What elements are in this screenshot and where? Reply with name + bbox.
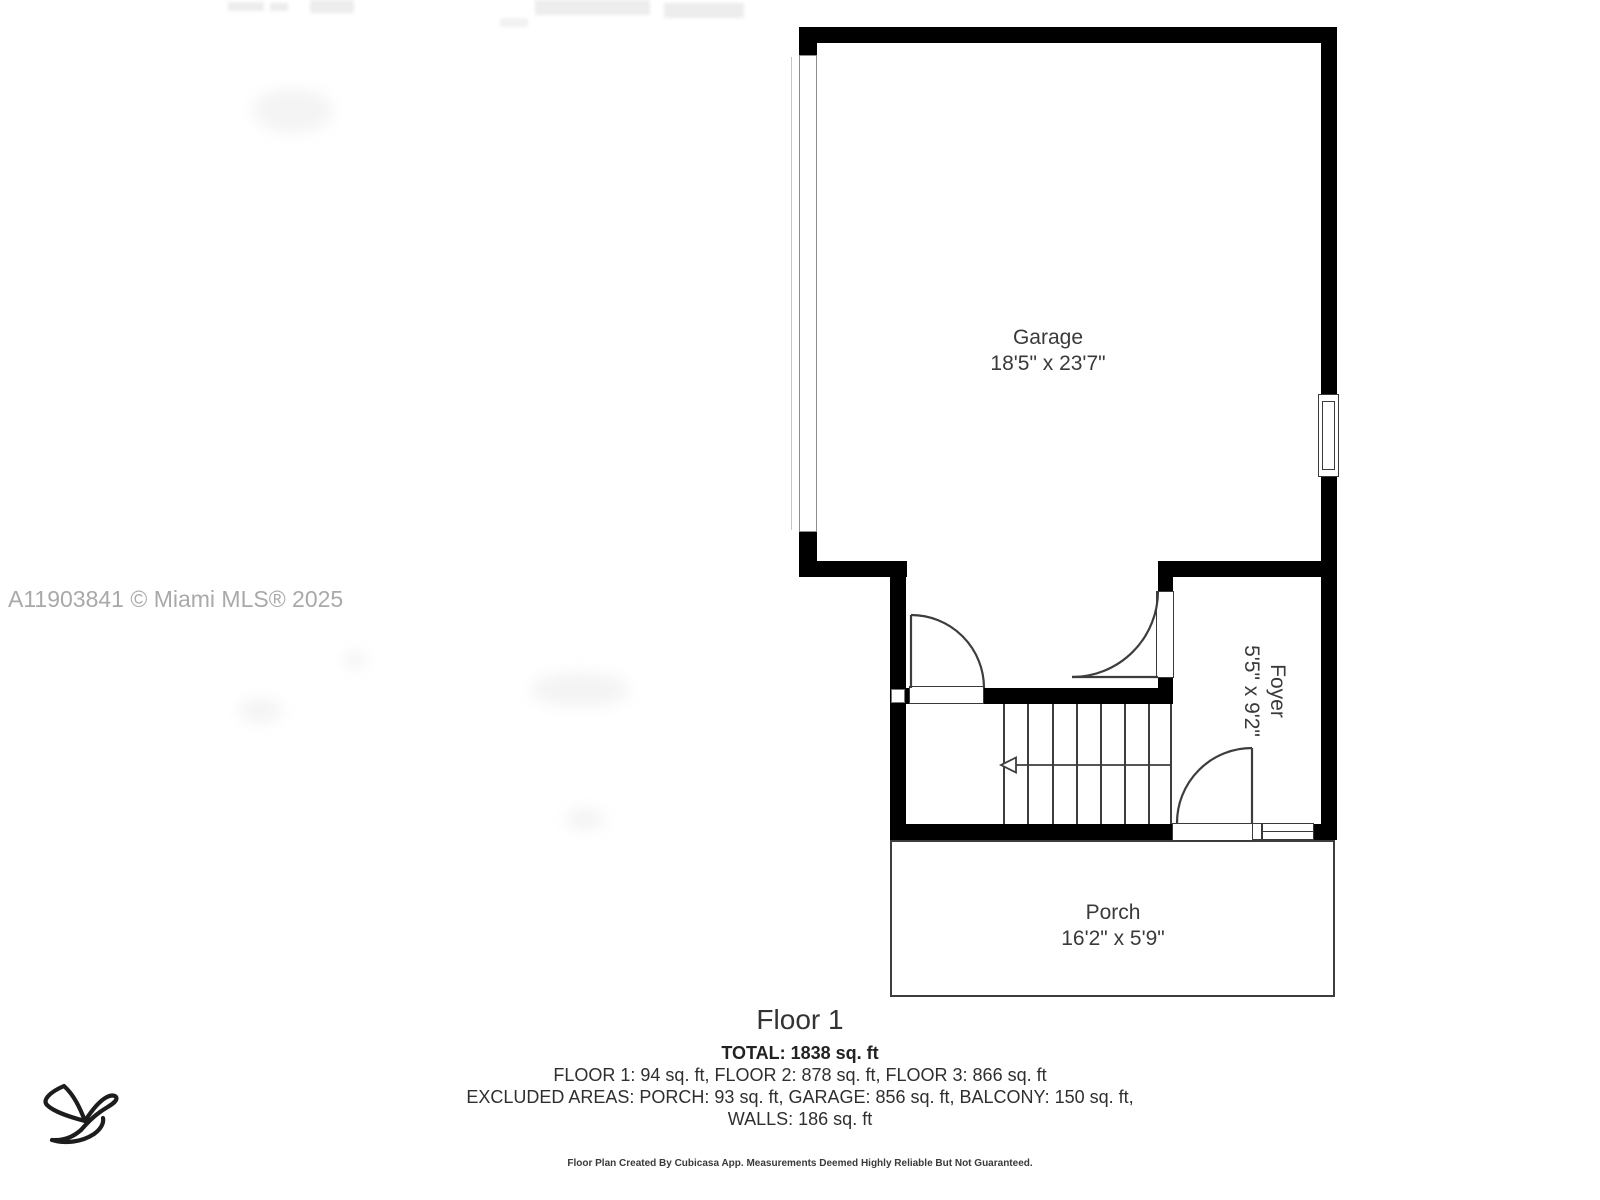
door-swing-arc bbox=[911, 615, 984, 688]
room-label-garage: Garage 18'5" x 23'7" bbox=[948, 325, 1148, 377]
floor-plan-page: A11903841 © Miami MLS® 2025 bbox=[0, 0, 1600, 1200]
disclaimer-text: Floor Plan Created By Cubicasa App. Meas… bbox=[200, 1158, 1400, 1170]
floor-breakdown: FLOOR 1: 94 sq. ft, FLOOR 2: 878 sq. ft,… bbox=[200, 1064, 1400, 1086]
room-dimensions: 5'5" x 9'2" bbox=[1238, 591, 1264, 791]
bird-logo-icon bbox=[38, 1080, 126, 1146]
floor-title: Floor 1 bbox=[200, 1004, 1400, 1036]
room-dimensions: 16'2" x 5'9" bbox=[1013, 926, 1213, 952]
floor-summary: Floor 1 TOTAL: 1838 sq. ft FLOOR 1: 94 s… bbox=[200, 1004, 1400, 1170]
total-area: TOTAL: 1838 sq. ft bbox=[200, 1042, 1400, 1064]
room-name: Porch bbox=[1013, 900, 1213, 926]
door-swing-arc bbox=[1072, 591, 1158, 677]
stairs-direction-arrow bbox=[1001, 758, 1170, 773]
mls-watermark-text: A11903841 © Miami MLS® 2025 bbox=[8, 586, 343, 613]
room-name: Foyer bbox=[1264, 591, 1290, 791]
room-dimensions: 18'5" x 23'7" bbox=[948, 351, 1148, 377]
room-label-porch: Porch 16'2" x 5'9" bbox=[1013, 900, 1213, 952]
room-name: Garage bbox=[948, 325, 1148, 351]
room-label-foyer: Foyer 5'5" x 9'2" bbox=[1238, 591, 1290, 791]
excluded-areas: EXCLUDED AREAS: PORCH: 93 sq. ft, GARAGE… bbox=[200, 1086, 1400, 1108]
walls-area: WALLS: 186 sq. ft bbox=[200, 1108, 1400, 1130]
